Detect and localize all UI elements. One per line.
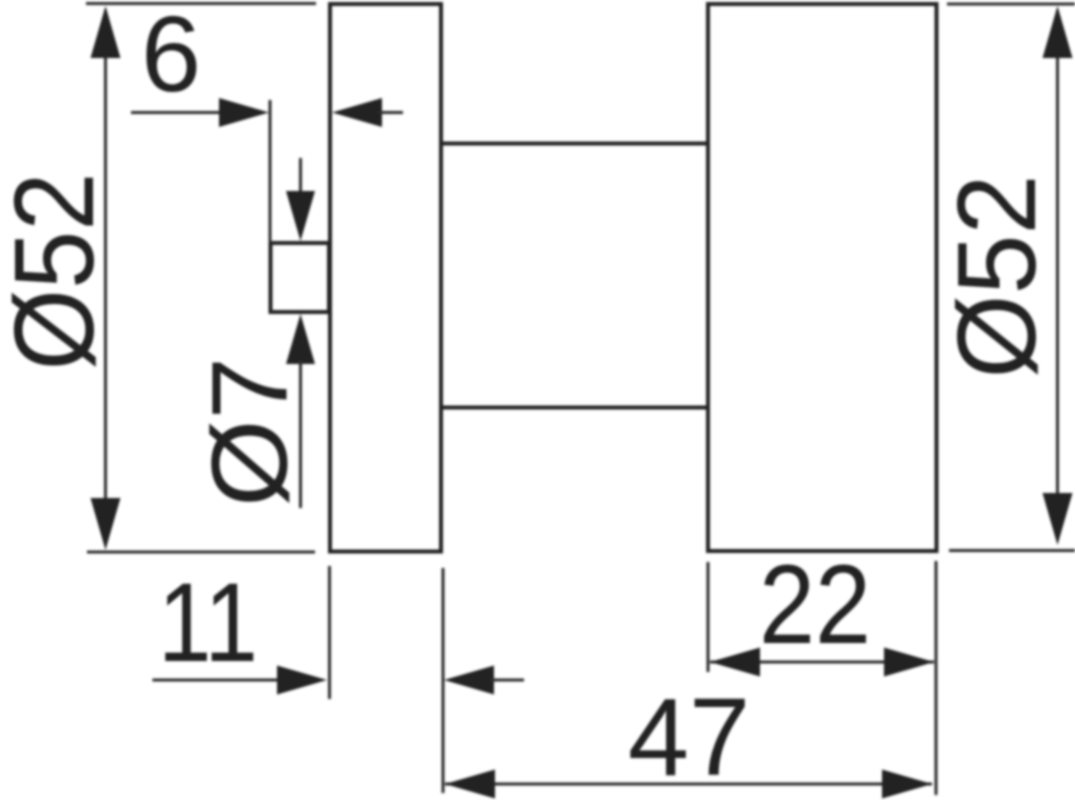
svg-text:6: 6 — [141, 0, 201, 114]
svg-text:Ø7: Ø7 — [189, 357, 310, 507]
svg-text:Ø52: Ø52 — [935, 175, 1059, 379]
svg-text:Ø52: Ø52 — [0, 173, 117, 371]
svg-text:22: 22 — [759, 542, 871, 667]
svg-text:11: 11 — [158, 560, 258, 685]
svg-text:47: 47 — [628, 676, 750, 799]
